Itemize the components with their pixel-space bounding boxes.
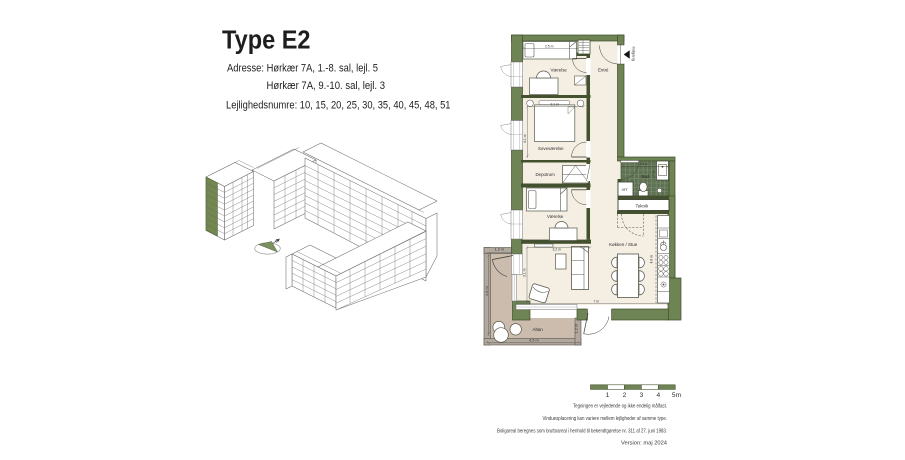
svg-text:4.5 m: 4.5 m [529,338,539,343]
svg-text:1.2 m: 1.2 m [495,247,505,252]
svg-text:2.3 m: 2.3 m [640,162,648,166]
svg-text:Entré: Entré [598,68,609,73]
svg-text:Soveværelse: Soveværelse [538,146,564,151]
svg-text:1.2 m: 1.2 m [573,324,578,334]
svg-text:Tegningen er vejledende og ikk: Tegningen er vejledende og ikke endelig … [573,403,667,410]
svg-text:Version: maj 2024: Version: maj 2024 [621,441,667,447]
svg-text:5m: 5m [672,392,682,399]
svg-text:3.2 m: 3.2 m [553,247,562,251]
svg-text:4.1 m: 4.1 m [523,134,527,143]
svg-text:2: 2 [623,392,627,399]
svg-text:Depotrum: Depotrum [536,172,556,177]
svg-text:Boligareal beregnes som brutto: Boligareal beregnes som bruttoareal i he… [497,429,667,435]
svg-text:3.1 m: 3.1 m [523,268,527,277]
svg-text:Indgang: Indgang [632,47,637,61]
svg-text:2.5 m: 2.5 m [545,44,554,48]
svg-text:3: 3 [640,392,644,399]
svg-text:1.7 m: 1.7 m [652,170,656,178]
svg-text:Værelse: Værelse [551,68,568,73]
svg-text:3.1 m: 3.1 m [551,102,560,106]
svg-text:1: 1 [606,392,610,399]
svg-text:VfT: VfT [622,187,629,192]
svg-text:Type E2: Type E2 [222,27,311,55]
svg-text:4.6 m: 4.6 m [484,286,489,296]
svg-text:Teknik: Teknik [636,204,650,209]
svg-text:Bad: Bad [642,174,650,179]
svg-text:Adresse: Hørkær 7A, 1.-8. sal,: Adresse: Hørkær 7A, 1.-8. sal, lejl. 5 [227,63,378,75]
svg-text:Hørkær 7A, 9.-10. sal, lejl. 3: Hørkær 7A, 9.-10. sal, lejl. 3 [267,80,386,92]
svg-text:7 m: 7 m [594,299,600,303]
svg-text:Vinduesplacering kan variere m: Vinduesplacering kan variere mellem lejl… [543,416,668,422]
svg-text:4: 4 [656,392,660,399]
svg-text:Altan: Altan [533,327,544,332]
svg-text:4.6 m: 4.6 m [650,255,654,264]
svg-text:Lejlighedsnumre: 10, 15, 20, 2: Lejlighedsnumre: 10, 15, 20, 25, 30, 35,… [226,99,451,111]
svg-text:Køkken / Stue: Køkken / Stue [609,242,638,247]
svg-text:Værelse: Værelse [547,214,564,219]
